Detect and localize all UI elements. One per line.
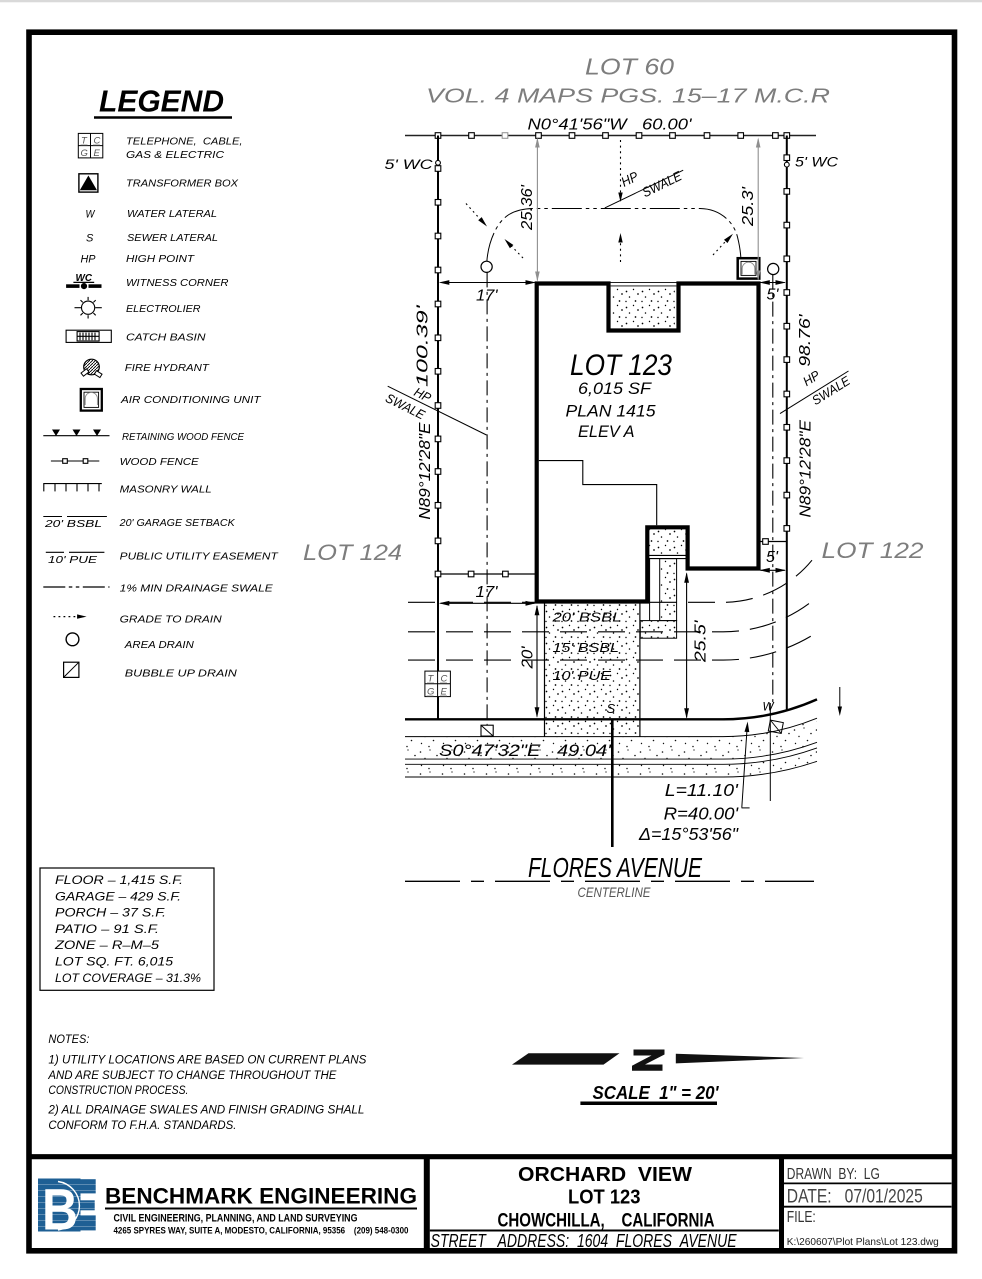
svg-text:ORCHARD VIEW: ORCHARD VIEW [518,1163,693,1186]
svg-text:15' BSBL: 15' BSBL [553,640,620,655]
svg-text:WITNESS CORNER: WITNESS CORNER [126,278,229,289]
svg-text:17': 17' [476,584,499,601]
svg-text:STREET ADDRESS: 1604 FLORE: STREET ADDRESS: 1604 FLORES AVENUE [431,1231,738,1251]
svg-text:CONFORM TO F.H.A. STANDARDS.: CONFORM TO F.H.A. STANDARDS. [48,1118,236,1132]
svg-text:Δ=15°53'56": Δ=15°53'56" [638,824,739,844]
svg-text:S0°47'32"E 49.04': S0°47'32"E 49.04' [439,742,612,760]
svg-text:SWALE: SWALE [640,168,685,200]
svg-text:CHOWCHILLA, CALIFORNIA: CHOWCHILLA, CALIFORNIA [498,1211,715,1232]
svg-text:TELEPHONE, CABLE,: TELEPHONE, CABLE, [126,137,243,148]
svg-text:DRAWN BY: LG: DRAWN BY: LG [787,1166,880,1183]
svg-text:20' BSBL: 20' BSBL [551,610,621,625]
svg-text:NOTES:: NOTES: [48,1032,89,1046]
svg-text:1) UTILITY LOCATIONS ARE BASED: 1) UTILITY LOCATIONS ARE BASED ON CURREN… [48,1053,367,1067]
svg-text:CONSTRUCTION PROCESS.: CONSTRUCTION PROCESS. [48,1083,188,1097]
svg-text:5' WC: 5' WC [385,157,433,172]
svg-text:HIGH POINT: HIGH POINT [126,254,195,265]
svg-text:6,015 SF: 6,015 SF [578,379,653,398]
svg-text:DATE: 07/01/2025: DATE: 07/01/2025 [787,1187,923,1208]
svg-text:LOT 122: LOT 122 [822,538,924,563]
svg-text:GARAGE – 429 S.F.: GARAGE – 429 S.F. [55,889,181,903]
svg-text:HP: HP [619,169,641,190]
svg-text:R=40.00': R=40.00' [664,804,739,824]
svg-text:BENCHMARK ENGINEERING: BENCHMARK ENGINEERING [105,1184,417,1209]
svg-text:FLOOR – 1,415 S.F.: FLOOR – 1,415 S.F. [55,873,183,887]
svg-text:ELEV A: ELEV A [578,422,635,441]
svg-text:AND ARE SUBJECT TO CHANGE THRO: AND ARE SUBJECT TO CHANGE THROUGHOUT THE [47,1068,337,1082]
svg-text:CIVIL ENGINEERING, PLANNING, A: CIVIL ENGINEERING, PLANNING, AND LAND SU… [114,1213,358,1225]
svg-text:LOT SQ. FT. 6,015: LOT SQ. FT. 6,015 [55,955,173,969]
svg-text:TRANSFORMER BOX: TRANSFORMER BOX [126,179,239,190]
svg-text:5' WC: 5' WC [795,155,838,170]
svg-text:98.76': 98.76' [797,313,814,366]
svg-text:RETAINING WOOD FENCE: RETAINING WOOD FENCE [122,432,244,443]
svg-text:W: W [86,209,96,221]
svg-text:20' BSBL: 20' BSBL [44,519,102,530]
svg-text:K:\260607\Plot Plans\Lot 123.d: K:\260607\Plot Plans\Lot 123.dwg [787,1236,939,1248]
svg-text:PUBLIC UTILITY EASEMENT: PUBLIC UTILITY EASEMENT [120,552,279,563]
svg-text:2) ALL DRAINAGE SWALES AND FIN: 2) ALL DRAINAGE SWALES AND FINISH GRADIN… [47,1103,364,1117]
svg-text:N89°12'28"E: N89°12'28"E [417,422,434,519]
svg-text:17': 17' [476,288,499,305]
svg-text:5': 5' [767,287,780,304]
svg-text:25.5': 25.5' [693,619,710,663]
svg-text:LOT COVERAGE – 31.3%: LOT COVERAGE – 31.3% [55,971,201,985]
svg-text:LOT 123: LOT 123 [568,1185,641,1208]
svg-text:LOT 124: LOT 124 [303,540,402,565]
svg-text:CENTERLINE: CENTERLINE [578,884,652,900]
svg-text:AIR CONDITIONING UNIT: AIR CONDITIONING UNIT [120,395,261,406]
svg-text:1% MIN DRAINAGE SWALE: 1% MIN DRAINAGE SWALE [120,584,273,595]
svg-text:S: S [607,701,616,716]
svg-text:HP: HP [81,254,97,266]
svg-text:GAS & ELECTRIC: GAS & ELECTRIC [126,150,225,161]
svg-text:ELECTROLIER: ELECTROLIER [126,304,201,315]
svg-text:WOOD FENCE: WOOD FENCE [120,457,199,468]
svg-text:LEGEND: LEGEND [99,84,224,119]
svg-text:LOT 123: LOT 123 [570,349,673,382]
svg-text:GRADE TO DRAIN: GRADE TO DRAIN [120,614,223,625]
svg-text:FLORES AVENUE: FLORES AVENUE [528,852,702,883]
svg-text:WATER LATERAL: WATER LATERAL [127,209,217,220]
svg-text:20' GARAGE SETBACK: 20' GARAGE SETBACK [119,518,236,529]
svg-text:PATIO – 91 S.F.: PATIO – 91 S.F. [55,922,159,936]
svg-text:S: S [86,232,94,244]
svg-text:FILE:: FILE: [787,1209,816,1226]
svg-text:L=11.10': L=11.10' [665,780,739,800]
svg-text:ZONE – R–M–5: ZONE – R–M–5 [54,938,159,952]
svg-text:PLAN 1415: PLAN 1415 [566,402,657,421]
svg-text:FIRE HYDRANT: FIRE HYDRANT [125,363,210,374]
svg-text:20': 20' [520,645,537,669]
svg-text:N89°12'28"E: N89°12'28"E [798,420,815,518]
svg-text:PORCH – 37 S.F.: PORCH – 37 S.F. [55,906,166,920]
svg-text:N0°41'56"W 60.00': N0°41'56"W 60.00' [528,117,693,134]
svg-text:100.39': 100.39' [415,304,432,387]
svg-text:LOT 60: LOT 60 [585,54,674,80]
svg-text:MASONRY WALL: MASONRY WALL [120,485,212,496]
svg-text:4265 SPYRES WAY, SUITE A, MODE: 4265 SPYRES WAY, SUITE A, MODESTO, CALIF… [114,1226,409,1236]
svg-text:BUBBLE UP DRAIN: BUBBLE UP DRAIN [125,668,238,679]
svg-text:AREA DRAIN: AREA DRAIN [124,640,195,651]
svg-text:10' PUE: 10' PUE [553,668,612,683]
svg-text:25.36': 25.36' [519,184,536,231]
svg-text:HP: HP [800,367,823,389]
svg-text:10' PUE: 10' PUE [48,555,97,566]
svg-text:25.3': 25.3' [740,186,757,227]
svg-text:CATCH BASIN: CATCH BASIN [126,333,206,344]
svg-text:B: B [42,1178,78,1243]
svg-text:VOL. 4 MAPS PGS. 15–17 M.C.R: VOL. 4 MAPS PGS. 15–17 M.C.R [426,86,830,108]
svg-text:SEWER LATERAL: SEWER LATERAL [127,233,218,244]
svg-text:5': 5' [766,549,779,566]
svg-text:SCALE 1" = 20': SCALE 1" = 20' [593,1083,720,1103]
svg-text:W: W [763,700,776,714]
